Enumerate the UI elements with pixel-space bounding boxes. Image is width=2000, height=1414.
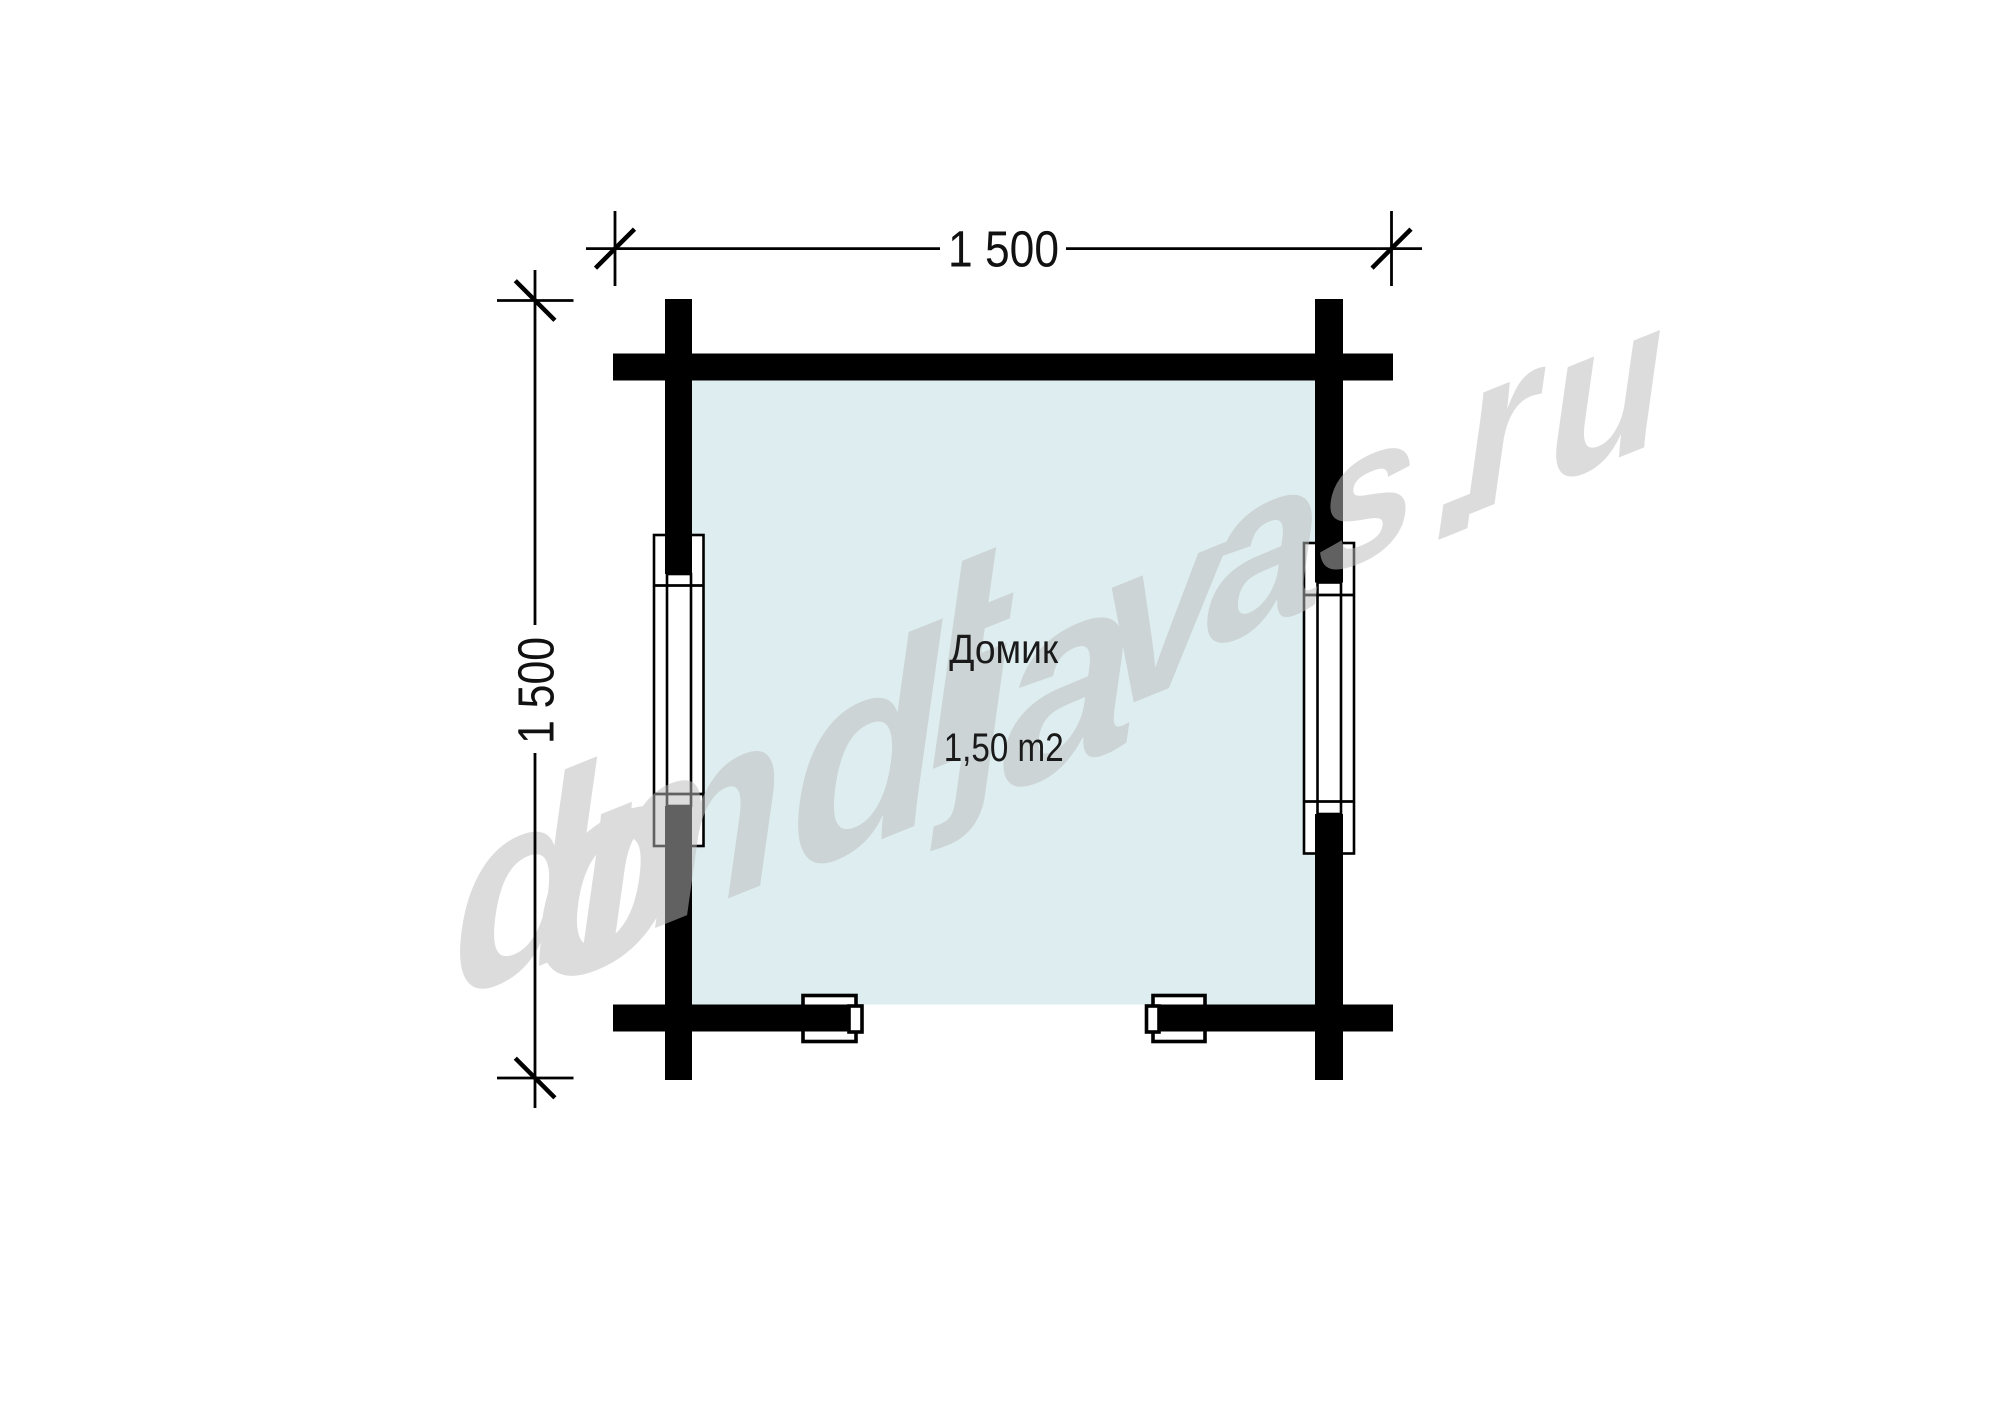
svg-text:1 500: 1 500: [508, 637, 565, 744]
svg-text:Домик: Домик: [949, 626, 1059, 672]
svg-text:1,50 m2: 1,50 m2: [944, 726, 1064, 770]
svg-text:1 500: 1 500: [948, 220, 1059, 277]
